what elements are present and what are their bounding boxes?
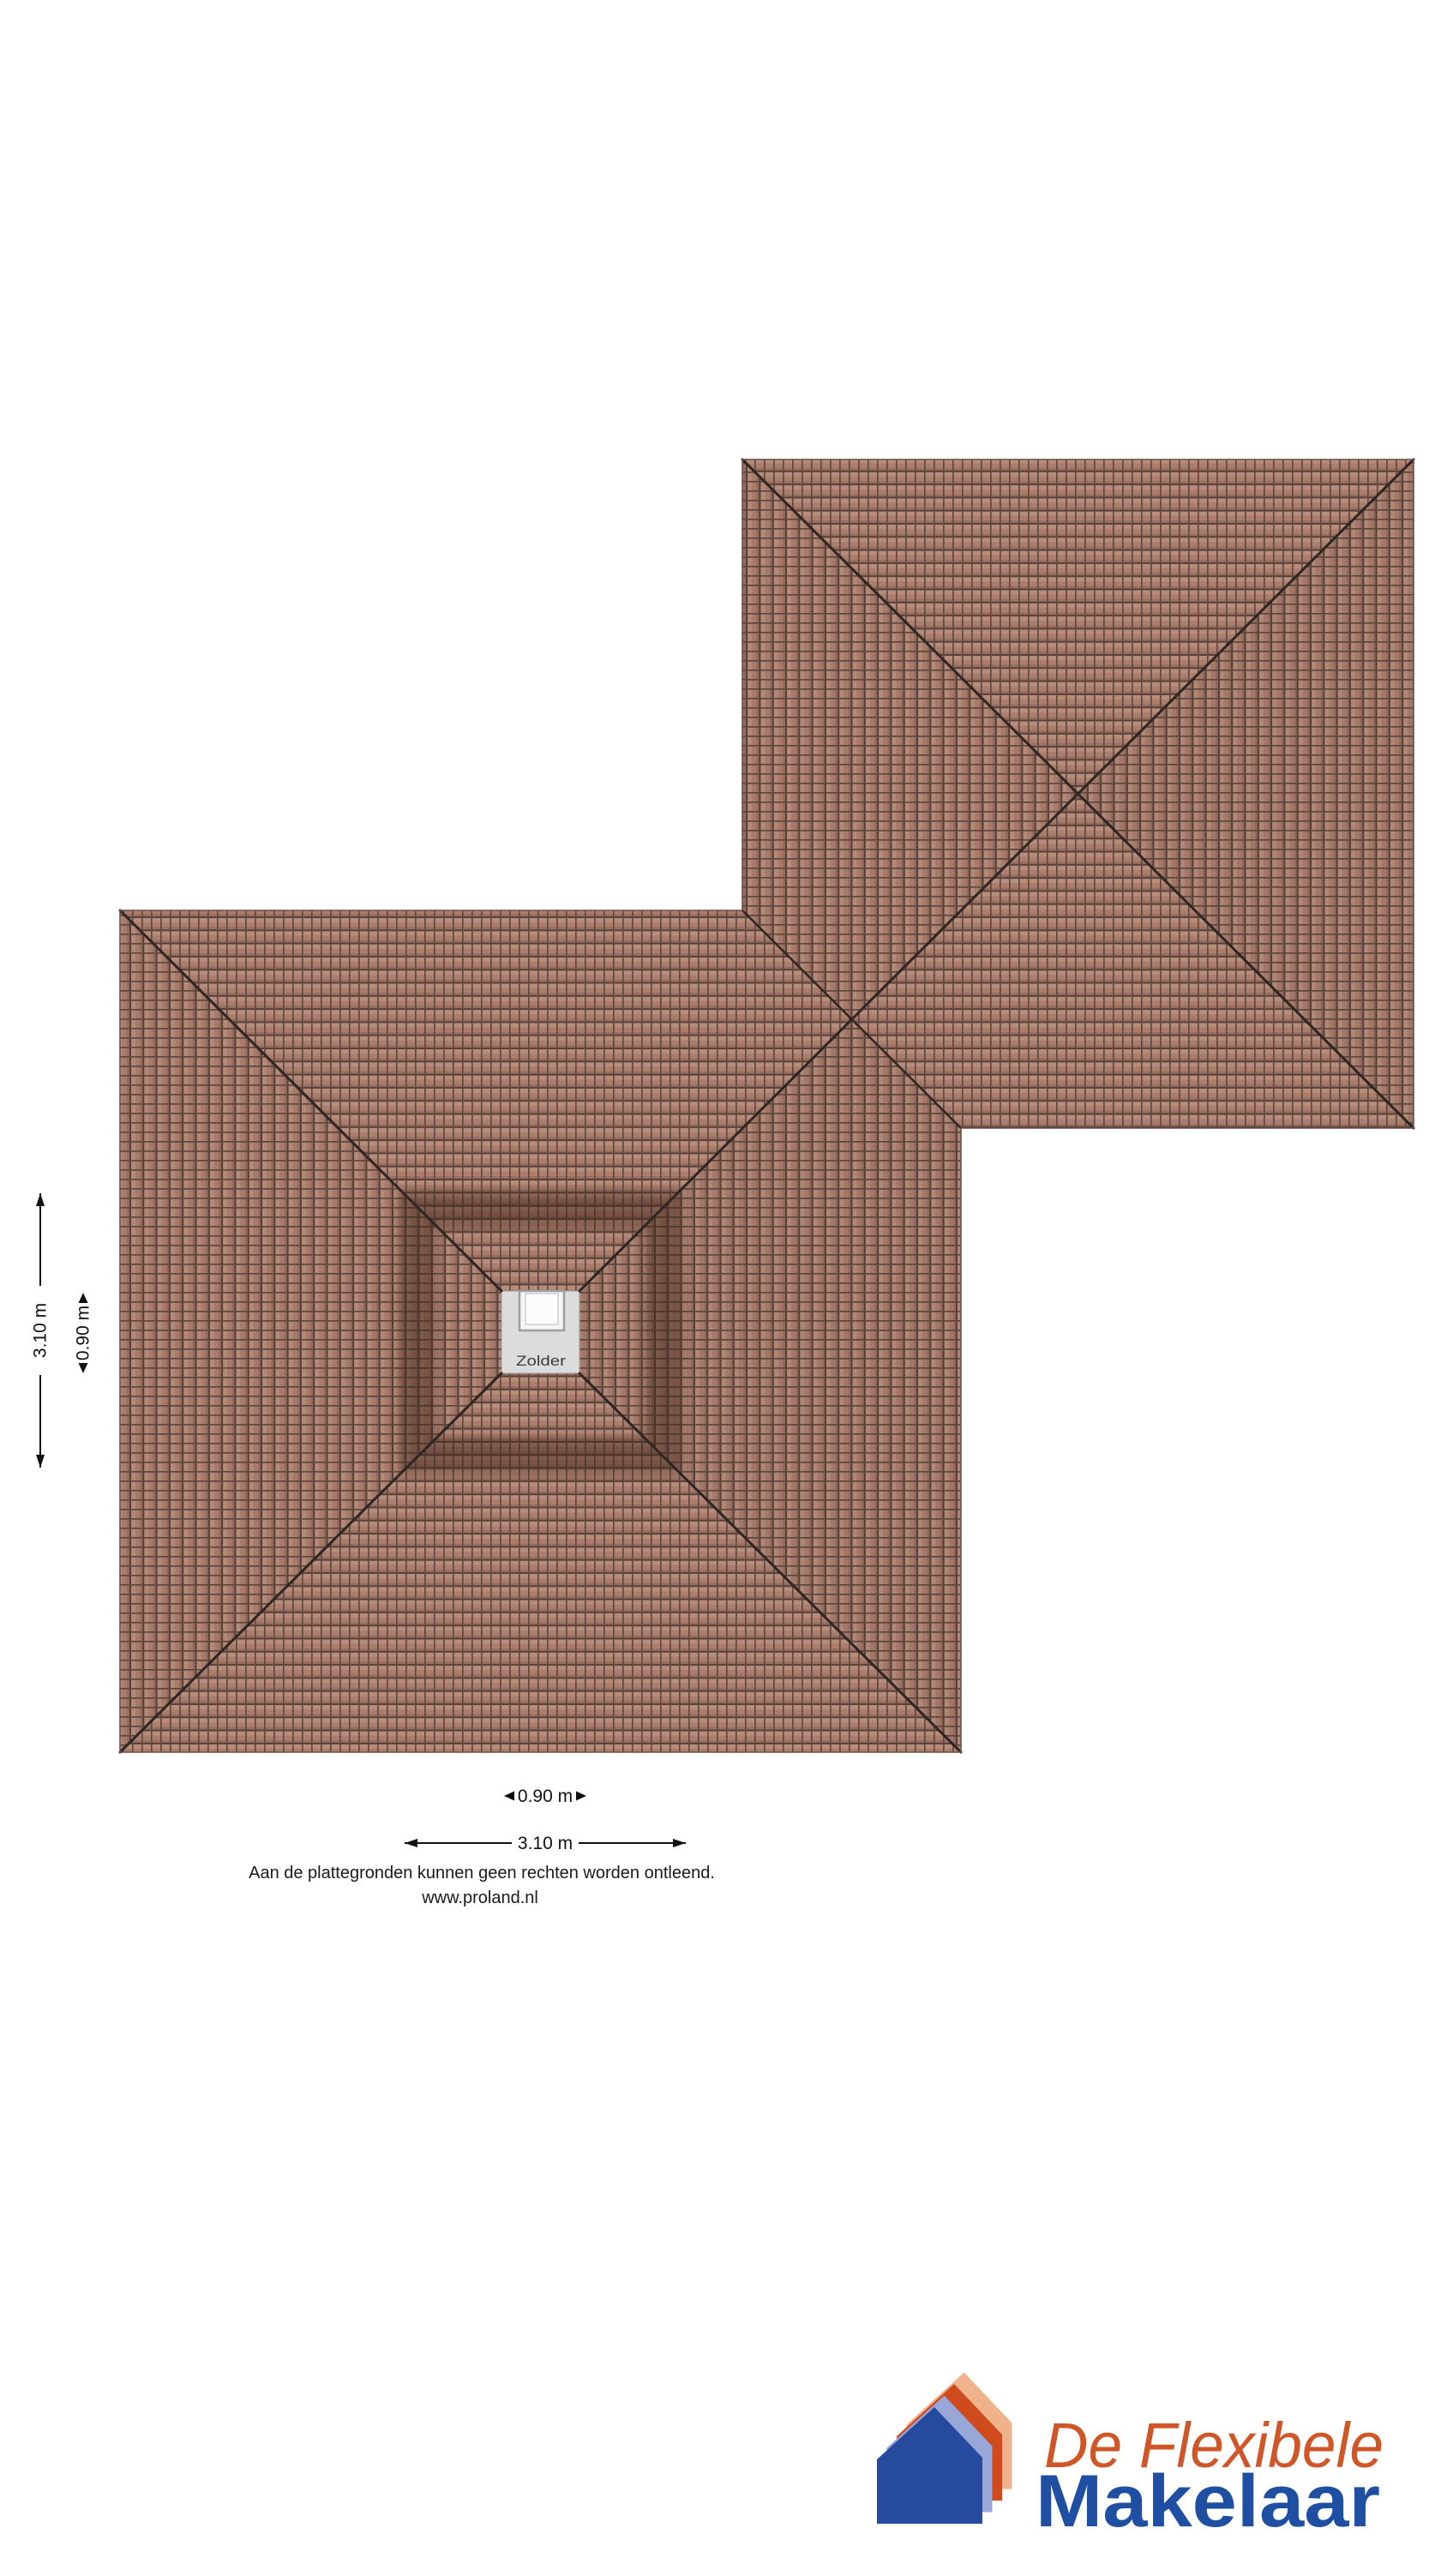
dim-left-outer-label: 3.10 m	[31, 1303, 51, 1358]
dim-left-inner-label: 0.90 m	[74, 1306, 93, 1360]
skylight-icon	[519, 1291, 564, 1330]
room-label: Zolder	[516, 1354, 567, 1369]
website-text: www.proland.nl	[421, 1888, 538, 1907]
dim-bottom-outer-label: 3.10 m	[518, 1834, 573, 1853]
roof-plan-drawing: Zolder 3.10 m 0.90 m	[0, 0, 1447, 2572]
logo-title-bottom: Makelaar	[1036, 2460, 1380, 2543]
floorplan-page: Zolder 3.10 m 0.90 m	[0, 0, 1447, 2572]
dim-bottom-inner-label: 0.90 m	[518, 1786, 573, 1806]
disclaimer-text: Aan de plattegronden kunnen geen rechten…	[249, 1864, 715, 1882]
